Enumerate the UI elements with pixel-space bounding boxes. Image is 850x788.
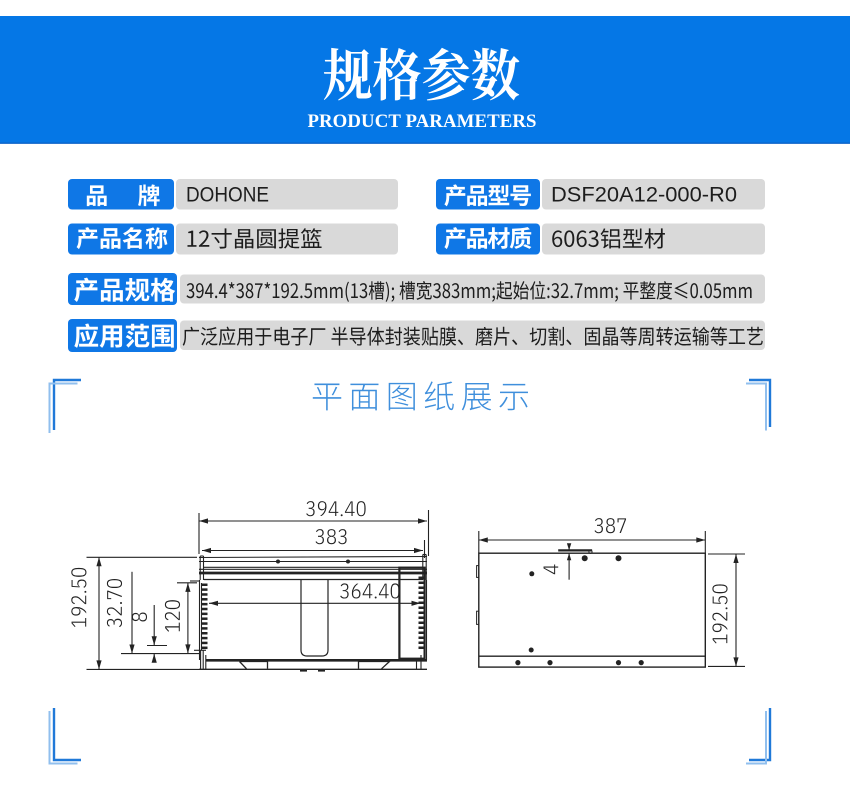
svg-text:PRODUCT PARAMETERS: PRODUCT PARAMETERS	[307, 111, 536, 132]
svg-text:DOHONE: DOHONE	[186, 182, 269, 206]
svg-text:DSF20A12-000-R0: DSF20A12-000-R0	[551, 182, 737, 206]
